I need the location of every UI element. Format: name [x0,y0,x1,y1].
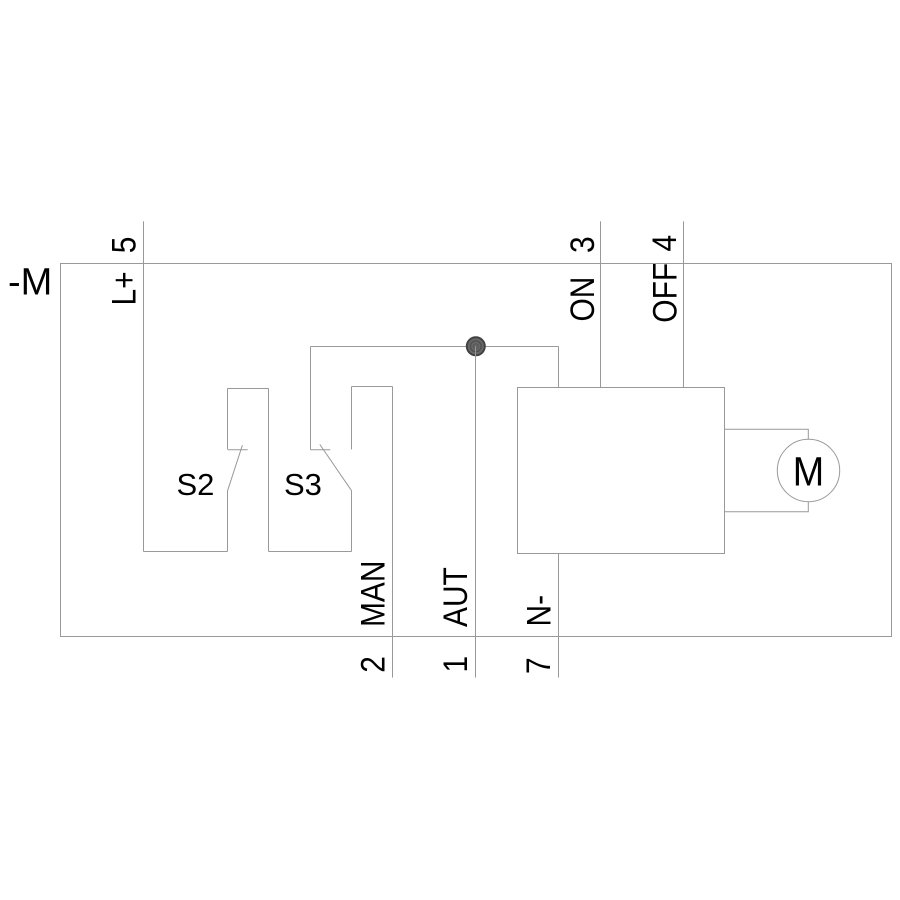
svg-text:L+: L+ [105,271,143,305]
svg-text:5: 5 [105,237,143,254]
svg-text:-M: -M [8,262,52,304]
svg-text:S2: S2 [177,467,215,502]
svg-text:S3: S3 [284,467,322,502]
svg-text:2: 2 [354,656,392,673]
svg-text:M: M [793,449,824,495]
svg-text:AUT: AUT [436,567,474,627]
svg-text:7: 7 [519,657,557,674]
svg-text:MAN: MAN [354,561,392,627]
svg-text:ON: ON [563,277,601,322]
svg-text:4: 4 [645,235,683,252]
svg-text:OFF: OFF [646,263,684,323]
svg-text:1: 1 [436,656,474,673]
svg-text:3: 3 [563,236,601,253]
svg-text:N-: N- [520,595,558,627]
